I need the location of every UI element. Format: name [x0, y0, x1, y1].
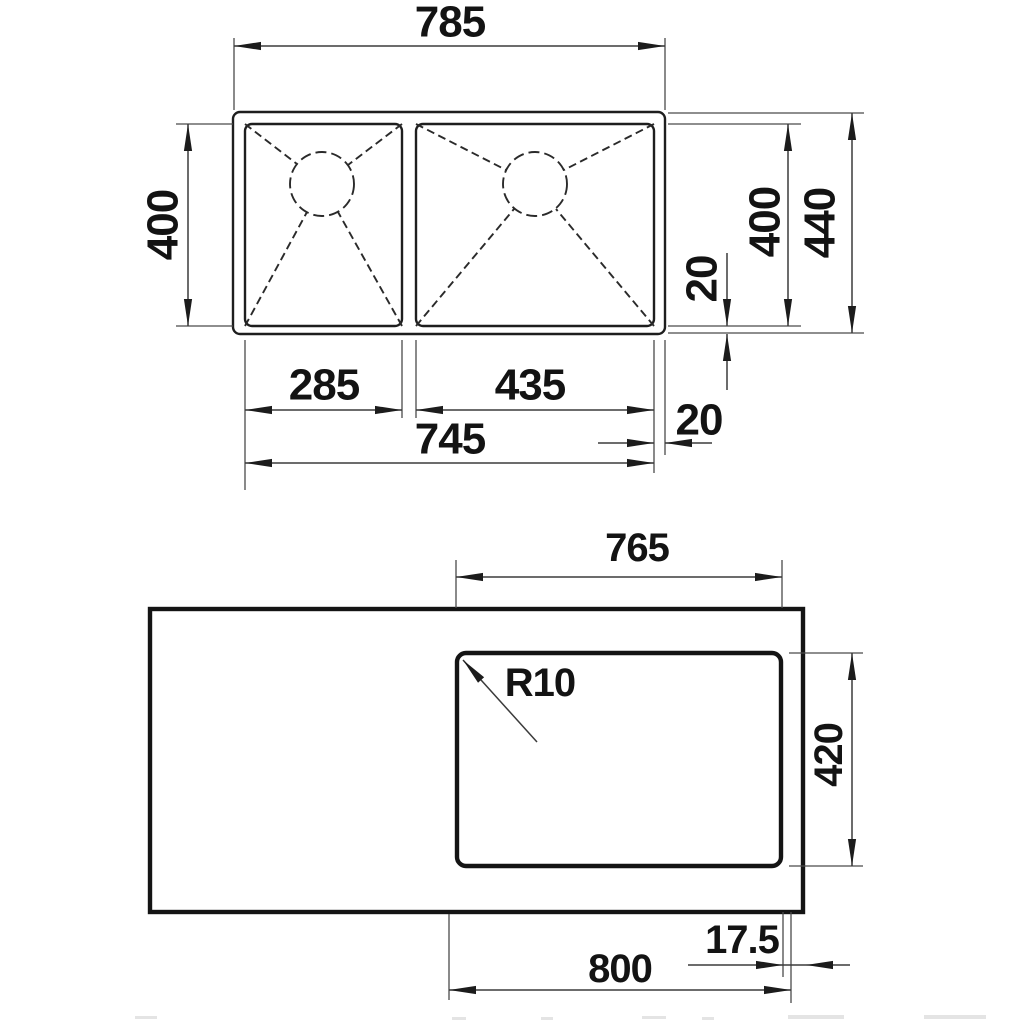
- sink-plan-outlines: [233, 112, 665, 334]
- dim-20-right-label: 20: [676, 396, 723, 445]
- dim-left-bowl-width: 285: [245, 361, 402, 411]
- drain-right: [503, 152, 567, 216]
- bowl-right-slope-lines: [416, 124, 654, 326]
- dim-rim-offset-bottom: 20: [678, 253, 728, 390]
- dim-cutout-depth: 420: [789, 653, 863, 866]
- drawing-canvas: 785 400 285 435 745: [0, 0, 1024, 1024]
- sink-rim-outline: [233, 112, 665, 334]
- bottom-view: 765 R10 420 17.5 800: [150, 526, 863, 1003]
- dim-285-label: 285: [289, 361, 360, 410]
- dim-cutout-width: 765: [456, 526, 782, 608]
- dim-785-label: 785: [415, 0, 486, 47]
- dim-435-label: 435: [495, 361, 566, 410]
- dim-400-left-label: 400: [139, 190, 188, 260]
- bowl-right-outline: [416, 124, 654, 326]
- radius-label: R10: [505, 661, 575, 705]
- corner-radius-callout: R10: [463, 660, 575, 742]
- dim-17-5-label: 17.5: [705, 918, 780, 962]
- dim-765-label: 765: [605, 526, 669, 570]
- dim-400-right-label: 400: [741, 187, 790, 257]
- dim-overall-width: 785: [234, 0, 665, 110]
- dim-rim-offset-right: 20: [598, 396, 722, 445]
- top-view: 785 400 285 435 745: [139, 0, 865, 490]
- dim-bowl-depth-left: 400: [139, 124, 234, 326]
- dim-800-label: 800: [588, 947, 652, 991]
- dim-440-label: 440: [796, 188, 845, 258]
- bowl-left-outline: [245, 124, 402, 326]
- dim-right-bowl-width: 435: [416, 361, 654, 411]
- technical-drawing: 785 400 285 435 745: [0, 0, 1024, 1024]
- dim-420-label: 420: [807, 723, 851, 787]
- dim-bowls-total-width: 745: [245, 415, 654, 464]
- dim-20-bottom-label: 20: [678, 256, 727, 303]
- drain-left: [290, 152, 354, 216]
- dim-745-label: 745: [415, 415, 486, 464]
- bottom-edge-artifacts: [135, 1015, 986, 1020]
- bowl-left-slope-lines: [245, 124, 402, 326]
